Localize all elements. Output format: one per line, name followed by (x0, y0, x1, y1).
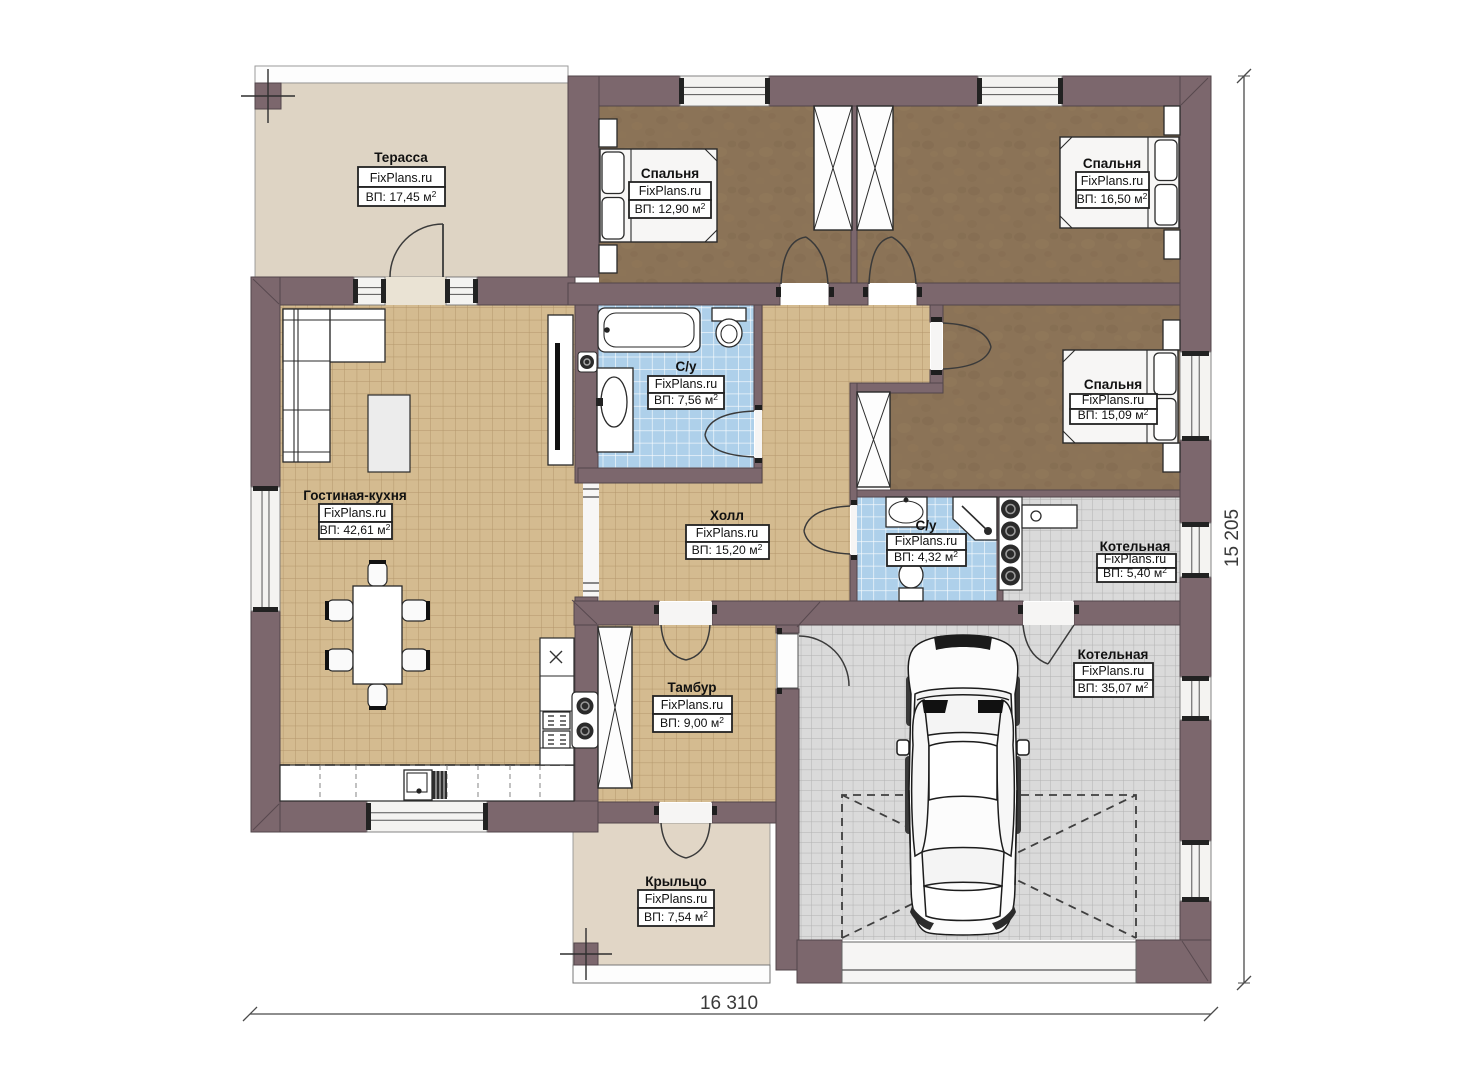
svg-text:FixPlans.ru: FixPlans.ru (895, 534, 958, 548)
svg-text:Холл: Холл (710, 508, 744, 523)
svg-text:ВП: 9,00 м2: ВП: 9,00 м2 (660, 715, 724, 730)
svg-text:Спальня: Спальня (1083, 156, 1141, 171)
svg-text:15 205: 15 205 (1222, 509, 1243, 567)
svg-text:Спальня: Спальня (1084, 377, 1142, 392)
svg-text:16 310: 16 310 (700, 993, 758, 1014)
svg-text:FixPlans.ru: FixPlans.ru (639, 184, 702, 198)
svg-text:ВП: 12,90 м2: ВП: 12,90 м2 (635, 201, 706, 216)
svg-text:ВП: 16,50 м2: ВП: 16,50 м2 (1077, 191, 1148, 206)
svg-text:Гостиная-кухня: Гостиная-кухня (303, 488, 406, 503)
svg-text:Терасса: Терасса (374, 150, 428, 165)
svg-text:ВП: 17,45 м2: ВП: 17,45 м2 (366, 189, 437, 204)
svg-text:Тамбур: Тамбур (668, 680, 717, 695)
svg-text:С/у: С/у (915, 518, 937, 533)
svg-text:Крыльцо: Крыльцо (645, 874, 706, 889)
svg-text:ВП: 7,56 м2: ВП: 7,56 м2 (654, 392, 718, 407)
svg-text:FixPlans.ru: FixPlans.ru (696, 526, 759, 540)
svg-text:FixPlans.ru: FixPlans.ru (661, 698, 724, 712)
svg-text:ВП: 7,54 м2: ВП: 7,54 м2 (644, 909, 708, 924)
svg-text:FixPlans.ru: FixPlans.ru (370, 171, 433, 185)
svg-text:FixPlans.ru: FixPlans.ru (655, 377, 718, 391)
svg-text:FixPlans.ru: FixPlans.ru (1104, 552, 1167, 566)
svg-text:FixPlans.ru: FixPlans.ru (1082, 393, 1145, 407)
svg-text:С/у: С/у (675, 359, 697, 374)
svg-text:ВП: 5,40 м2: ВП: 5,40 м2 (1103, 565, 1167, 580)
svg-text:FixPlans.ru: FixPlans.ru (324, 506, 387, 520)
svg-text:FixPlans.ru: FixPlans.ru (645, 892, 708, 906)
svg-text:ВП: 42,61 м2: ВП: 42,61 м2 (320, 522, 391, 537)
svg-text:FixPlans.ru: FixPlans.ru (1081, 174, 1144, 188)
svg-text:ВП: 4,32 м2: ВП: 4,32 м2 (894, 549, 958, 564)
svg-text:ВП: 35,07 м2: ВП: 35,07 м2 (1078, 680, 1149, 695)
svg-text:Котельная: Котельная (1078, 647, 1149, 662)
svg-text:Спальня: Спальня (641, 166, 699, 181)
svg-text:FixPlans.ru: FixPlans.ru (1082, 664, 1145, 678)
svg-text:ВП: 15,09 м2: ВП: 15,09 м2 (1078, 407, 1149, 422)
svg-text:ВП: 15,20 м2: ВП: 15,20 м2 (692, 542, 763, 557)
